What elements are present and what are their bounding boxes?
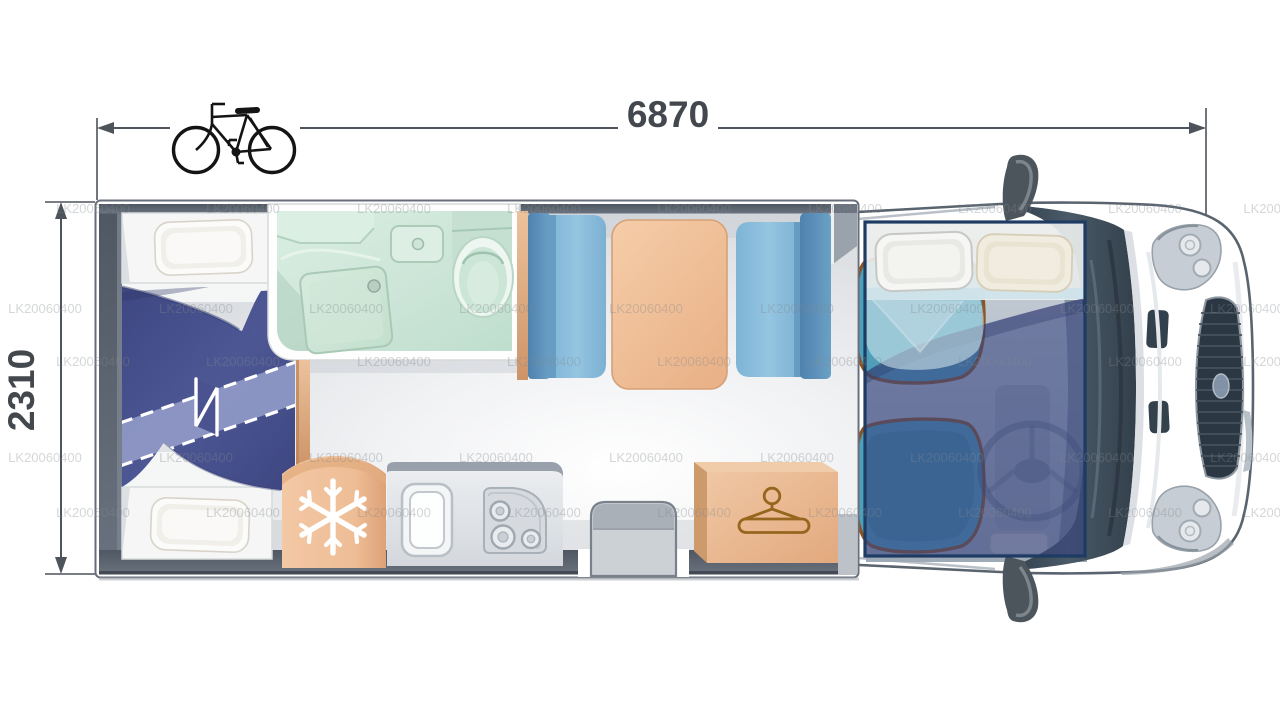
svg-text:LK20060400: LK20060400 <box>609 450 683 465</box>
svg-text:6870: 6870 <box>627 94 709 135</box>
svg-text:LK20060400: LK20060400 <box>56 201 130 216</box>
svg-text:LK20060400: LK20060400 <box>357 505 431 520</box>
svg-text:LK20060400: LK20060400 <box>1210 450 1280 465</box>
svg-text:LK20060400: LK20060400 <box>657 201 731 216</box>
svg-text:LK20060400: LK20060400 <box>808 354 882 369</box>
svg-text:LK20060400: LK20060400 <box>808 505 882 520</box>
svg-text:LK200604: LK200604 <box>1243 201 1280 216</box>
svg-text:LK20060400: LK20060400 <box>1108 354 1182 369</box>
svg-text:LK20060400: LK20060400 <box>1060 301 1134 316</box>
svg-text:LK20060400: LK20060400 <box>459 301 533 316</box>
svg-text:LK20060400: LK20060400 <box>206 201 280 216</box>
svg-text:LK20060400: LK20060400 <box>56 505 130 520</box>
svg-text:LK20060400: LK20060400 <box>159 450 233 465</box>
svg-text:LK20060400: LK20060400 <box>1210 301 1280 316</box>
svg-text:LK20060400: LK20060400 <box>507 201 581 216</box>
svg-text:LK20060400: LK20060400 <box>357 354 431 369</box>
svg-text:LK20060400: LK20060400 <box>958 354 1032 369</box>
svg-text:LK20060400: LK20060400 <box>760 450 834 465</box>
svg-text:LK20060400: LK20060400 <box>1060 450 1134 465</box>
svg-text:LK20060400: LK20060400 <box>507 354 581 369</box>
svg-text:LK20060400: LK20060400 <box>309 450 383 465</box>
svg-text:LK20060400: LK20060400 <box>206 354 280 369</box>
svg-text:LK20060400: LK20060400 <box>8 301 82 316</box>
svg-text:LK20060400: LK20060400 <box>910 301 984 316</box>
svg-text:LK20060400: LK20060400 <box>8 450 82 465</box>
svg-text:LK20060400: LK20060400 <box>206 505 280 520</box>
svg-text:LK20060400: LK20060400 <box>159 301 233 316</box>
svg-text:LK20060400: LK20060400 <box>958 505 1032 520</box>
svg-text:LK20060400: LK20060400 <box>507 505 581 520</box>
svg-text:LK20060400: LK20060400 <box>1108 505 1182 520</box>
svg-text:LK20060400: LK20060400 <box>459 450 533 465</box>
svg-text:LK20060400: LK20060400 <box>958 201 1032 216</box>
svg-text:LK20060400: LK20060400 <box>910 450 984 465</box>
svg-text:LK20060400: LK20060400 <box>1108 201 1182 216</box>
svg-text:LK20060400: LK20060400 <box>657 505 731 520</box>
svg-text:LK200604: LK200604 <box>1243 354 1280 369</box>
svg-text:LK20060400: LK20060400 <box>609 301 683 316</box>
svg-text:LK20060400: LK20060400 <box>760 301 834 316</box>
svg-text:LK20060400: LK20060400 <box>357 201 431 216</box>
svg-text:LK20060400: LK20060400 <box>657 354 731 369</box>
svg-text:LK20060400: LK20060400 <box>56 354 130 369</box>
svg-text:LK20060400: LK20060400 <box>309 301 383 316</box>
svg-text:LK200604: LK200604 <box>1243 505 1280 520</box>
svg-text:2310: 2310 <box>1 349 42 431</box>
svg-text:LK20060400: LK20060400 <box>808 201 882 216</box>
